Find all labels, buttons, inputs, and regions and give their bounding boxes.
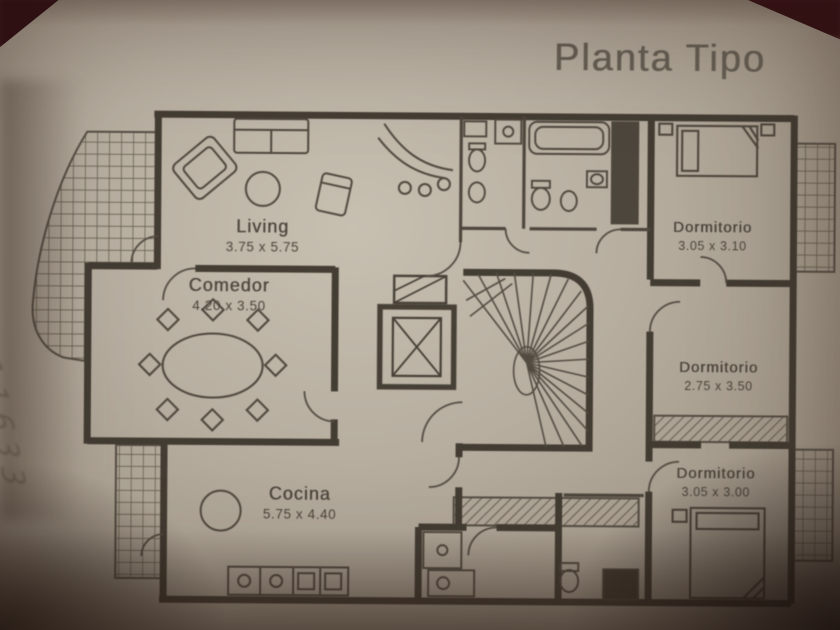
floor-plan-photo: Planta Tipo Living 3.75 x 5.75 Comedor 4… bbox=[0, 0, 840, 630]
photo-corner-bottom-right bbox=[570, 445, 840, 630]
room-name: Comedor bbox=[189, 274, 270, 298]
room-dims: 2.75 x 3.50 bbox=[679, 377, 758, 394]
room-name: Cocina bbox=[263, 482, 337, 506]
photo-corner-bottom-left bbox=[0, 460, 230, 630]
room-dims: 4.20 x 3.50 bbox=[188, 297, 269, 315]
dining-set bbox=[139, 299, 287, 431]
shaft bbox=[611, 121, 640, 224]
living-furniture bbox=[170, 118, 453, 217]
room-dims: 3.05 x 3.10 bbox=[673, 237, 752, 254]
room-label-cocina: Cocina 5.75 x 4.40 bbox=[263, 482, 337, 523]
room-name: Dormitorio bbox=[679, 358, 758, 378]
room-label-dormitorio-2: Dormitorio 2.75 x 3.50 bbox=[679, 358, 758, 394]
room-label-comedor: Comedor 4.20 x 3.50 bbox=[188, 274, 269, 316]
plan-title: Planta Tipo bbox=[554, 37, 824, 82]
room-dims: 5.75 x 4.40 bbox=[263, 506, 337, 524]
staircase bbox=[462, 272, 589, 447]
room-label-living: Living 3.75 x 5.75 bbox=[226, 215, 300, 256]
room-dims: 3.75 x 5.75 bbox=[226, 239, 300, 257]
elevator bbox=[379, 276, 454, 388]
room-label-dormitorio-1: Dormitorio 3.05 x 3.10 bbox=[673, 218, 752, 254]
room-name: Living bbox=[226, 215, 300, 239]
room-name: Dormitorio bbox=[673, 218, 752, 238]
